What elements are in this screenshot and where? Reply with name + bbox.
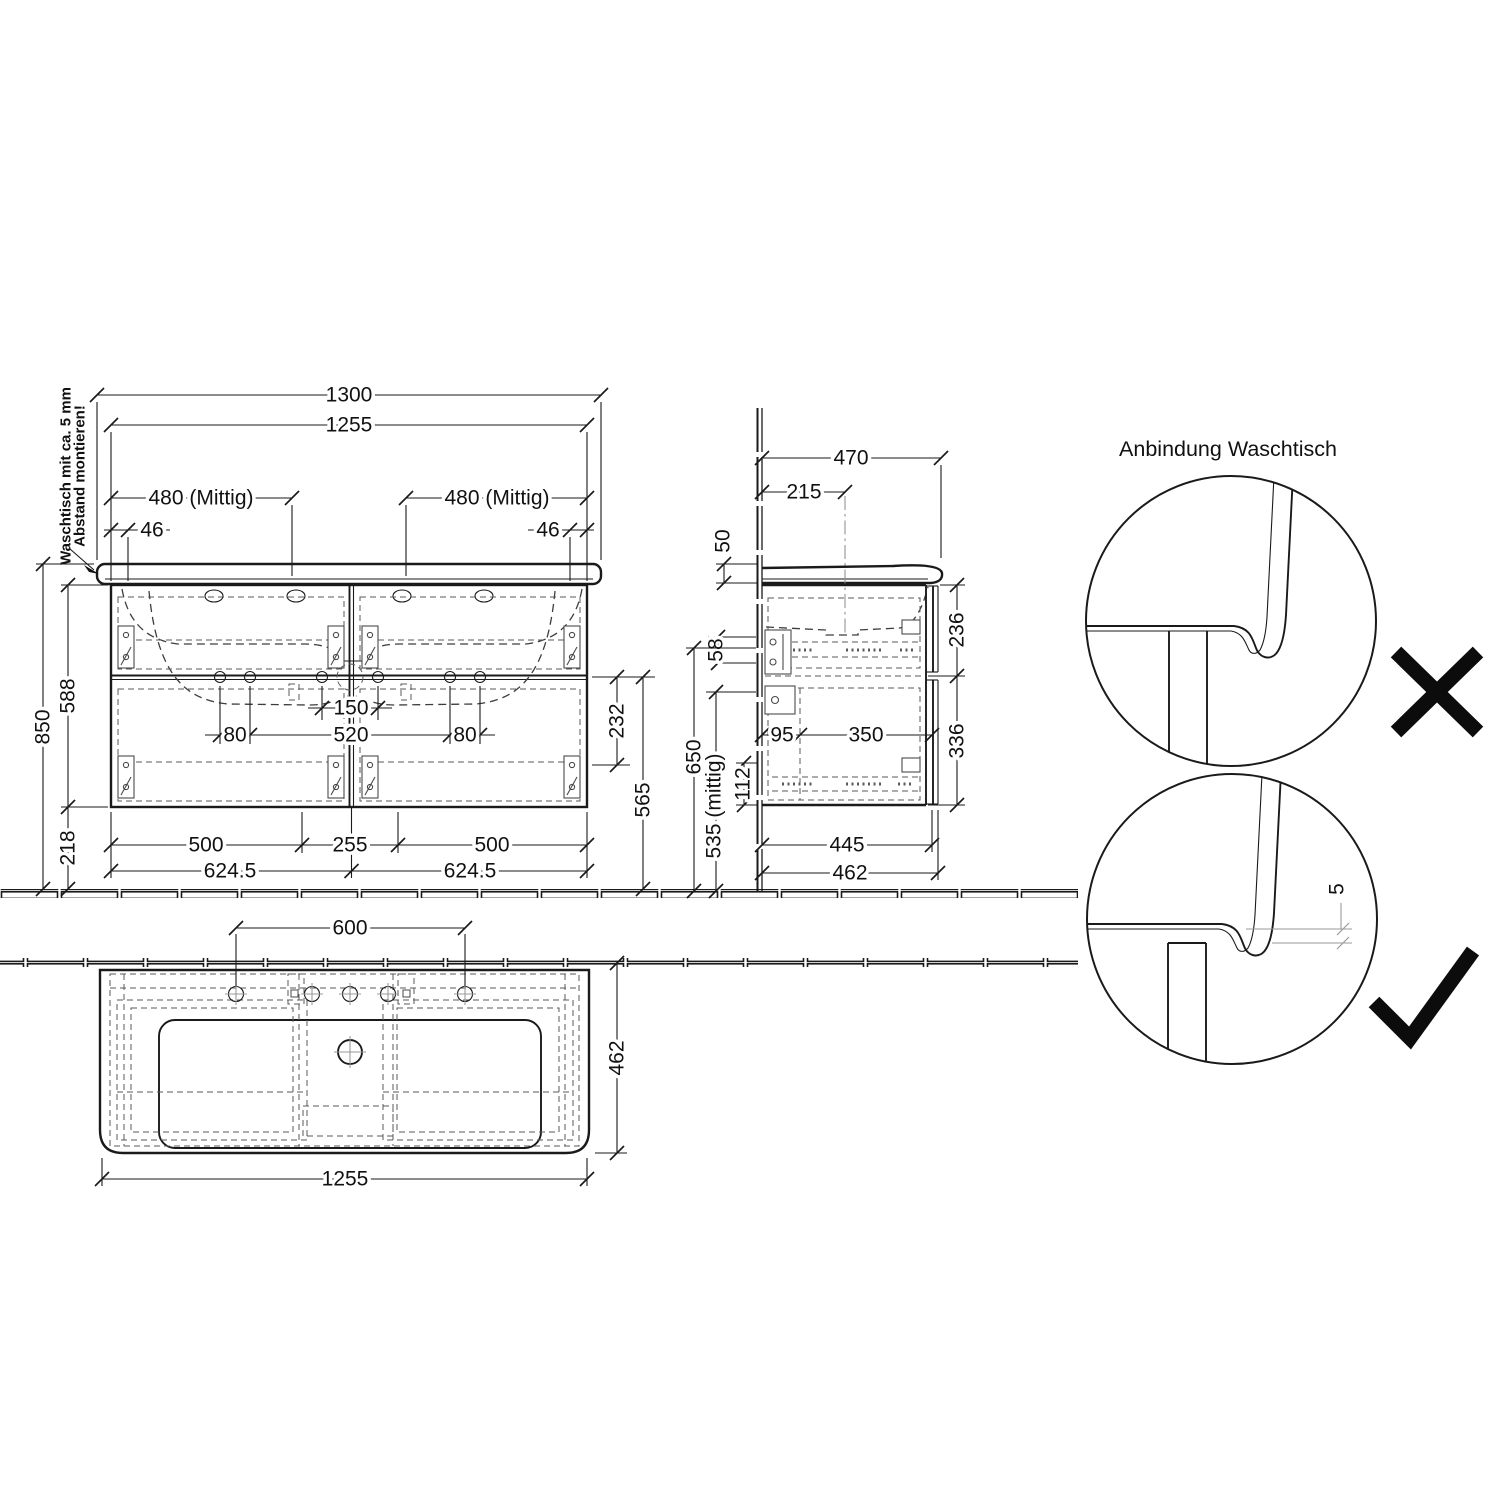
side-trap-offset-label: 112 bbox=[732, 767, 755, 800]
dim-500-255-500: 500 255 500 bbox=[104, 807, 594, 878]
dim-112: 112 bbox=[732, 756, 758, 812]
detail-section: Anbindung Waschtisch bbox=[1084, 437, 1478, 1064]
front-handle-span-label: 520 bbox=[333, 724, 368, 747]
mounting-note-line2: Abstand montieren! bbox=[72, 405, 89, 547]
dim-218: 218 bbox=[57, 807, 80, 896]
front-total-width-label: 1300 bbox=[326, 384, 373, 407]
front-handle-offset-left-label: 80 bbox=[223, 724, 246, 747]
front-bowl-hidden-lines bbox=[122, 589, 582, 705]
dim-470: 470 bbox=[755, 447, 948, 559]
top-drain-hole bbox=[334, 1036, 366, 1068]
side-body-depth-label: 445 bbox=[829, 834, 864, 857]
side-lower-drawer-label: 336 bbox=[946, 723, 969, 758]
vanity-installation-drawing: 1300 1255 480 (Mittig) 480 (Mittig) 46 bbox=[0, 0, 1500, 1500]
detail-gap-label: 5 bbox=[1326, 883, 1349, 895]
technical-drawing-page: 1300 1255 480 (Mittig) 480 (Mittig) 46 bbox=[0, 0, 1500, 1500]
top-tap-span-label: 600 bbox=[332, 917, 367, 940]
dim-462-top: 462 bbox=[595, 956, 629, 1160]
dim-58: 58 bbox=[705, 630, 757, 670]
dim-480-left: 480 (Mittig) bbox=[104, 487, 299, 577]
front-view: 1300 1255 480 (Mittig) 480 (Mittig) 46 bbox=[32, 384, 656, 897]
front-center-panel-label: 255 bbox=[332, 834, 367, 857]
side-front-depth-label: 462 bbox=[832, 862, 867, 885]
top-view: 600 462 1255 bbox=[95, 917, 629, 1191]
check-mark-icon bbox=[1374, 951, 1473, 1038]
detail-wrong bbox=[1084, 474, 1478, 770]
front-drawer-left-label: 500 bbox=[188, 834, 223, 857]
top-washbasin bbox=[100, 970, 589, 1153]
side-back-offset-label: 95 bbox=[770, 724, 793, 747]
dim-624-5: 624.5 624.5 bbox=[104, 860, 594, 883]
side-tap-depth-label: 215 bbox=[786, 481, 821, 504]
dim-236: 236 bbox=[928, 578, 969, 683]
front-divider-floor-label: 565 bbox=[632, 782, 655, 817]
side-basin-height-label: 50 bbox=[712, 529, 735, 552]
front-height-below-label: 218 bbox=[57, 830, 80, 865]
front-half-left-label: 624.5 bbox=[204, 860, 257, 883]
front-half-right-label: 624.5 bbox=[444, 860, 497, 883]
side-upper-drawer-label: 236 bbox=[946, 612, 969, 647]
side-wall bbox=[758, 408, 763, 891]
dim-1255-top: 1255 bbox=[95, 1158, 594, 1191]
dim-215: 215 bbox=[755, 481, 852, 504]
front-gap-left-label: 46 bbox=[140, 519, 163, 542]
front-gap-right-label: 46 bbox=[536, 519, 559, 542]
front-height-total-label: 850 bbox=[32, 709, 55, 744]
top-depth-label: 462 bbox=[606, 1040, 629, 1075]
top-width-label: 1255 bbox=[322, 1168, 369, 1191]
side-depth-total-label: 470 bbox=[833, 447, 868, 470]
front-bowl-right-label: 480 (Mittig) bbox=[444, 487, 549, 510]
side-rail-height-label: 58 bbox=[705, 638, 728, 661]
front-handle-offset-right-label: 80 bbox=[453, 724, 476, 747]
dim-95-350: 95 350 bbox=[755, 724, 939, 747]
front-divider-drop-label: 232 bbox=[606, 703, 629, 738]
dim-600: 600 bbox=[229, 917, 472, 987]
dim-588: 588 bbox=[57, 578, 109, 814]
side-drawer-hidden-lines bbox=[765, 598, 920, 800]
x-mark-icon bbox=[1396, 652, 1478, 732]
dim-480-right: 480 (Mittig) bbox=[399, 487, 594, 577]
side-slide-length-label: 350 bbox=[848, 724, 883, 747]
wall-section-line bbox=[0, 958, 1078, 967]
dim-46-left: 46 bbox=[104, 519, 170, 582]
dim-46-right: 46 bbox=[528, 519, 594, 582]
top-tap-holes bbox=[225, 983, 476, 1005]
dim-50: 50 bbox=[712, 529, 758, 590]
side-view: 470 215 50 58 650 bbox=[683, 408, 969, 898]
dim-336: 336 bbox=[928, 676, 969, 812]
front-height-cabinet-label: 588 bbox=[57, 678, 80, 713]
front-bowl-left-label: 480 (Mittig) bbox=[148, 487, 253, 510]
detail-title: Anbindung Waschtisch bbox=[1119, 437, 1337, 461]
front-washbasin bbox=[97, 564, 601, 584]
front-drawer-right-label: 500 bbox=[474, 834, 509, 857]
mounting-note: Waschtisch mit ca. 5 mm Abstand montiere… bbox=[58, 387, 100, 574]
dim-232: 232 bbox=[592, 670, 655, 772]
floor-line bbox=[0, 889, 1078, 898]
detail-correct: 5 bbox=[1085, 772, 1473, 1064]
dim-1300: 1300 bbox=[90, 384, 608, 561]
front-cabinet-width-label: 1255 bbox=[326, 414, 373, 437]
side-trap-height-label: 535 (mittig) bbox=[703, 753, 726, 858]
dim-565: 565 bbox=[632, 670, 655, 896]
front-tap-span-label: 150 bbox=[333, 697, 368, 720]
dim-445: 445 bbox=[755, 810, 939, 857]
